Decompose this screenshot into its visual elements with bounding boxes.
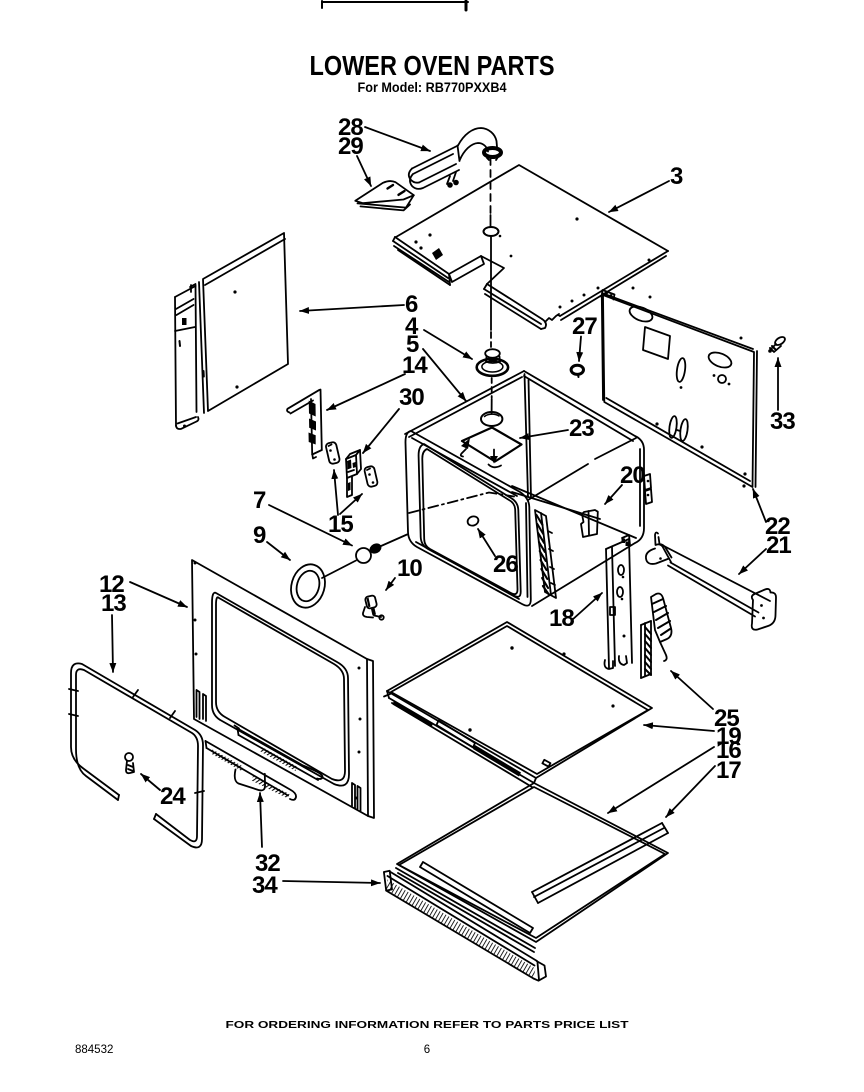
svg-text:34: 34 (252, 872, 278, 899)
svg-text:27: 27 (572, 313, 597, 340)
svg-text:24: 24 (160, 783, 186, 810)
svg-text:884532: 884532 (75, 1044, 113, 1056)
svg-text:10: 10 (397, 555, 422, 582)
svg-text:For Model: RB770PXXB4: For Model: RB770PXXB4 (358, 80, 507, 95)
svg-text:FOR ORDERING INFORMATION REFER: FOR ORDERING INFORMATION REFER TO PARTS … (226, 1020, 629, 1031)
svg-text:15: 15 (328, 511, 353, 538)
svg-text:21: 21 (766, 532, 791, 559)
svg-text:18: 18 (549, 605, 574, 632)
svg-text:23: 23 (569, 415, 594, 442)
svg-text:9: 9 (253, 522, 266, 549)
svg-text:6: 6 (424, 1044, 430, 1056)
svg-text:33: 33 (770, 408, 795, 435)
svg-text:26: 26 (493, 551, 518, 578)
svg-text:30: 30 (399, 384, 424, 411)
svg-text:14: 14 (402, 352, 428, 379)
svg-text:7: 7 (253, 487, 266, 514)
svg-text:29: 29 (338, 133, 363, 160)
svg-text:13: 13 (101, 590, 126, 617)
svg-text:17: 17 (716, 757, 741, 784)
svg-text:20: 20 (620, 462, 645, 489)
svg-text:3: 3 (670, 163, 683, 190)
svg-text:LOWER OVEN PARTS: LOWER OVEN PARTS (310, 50, 555, 81)
